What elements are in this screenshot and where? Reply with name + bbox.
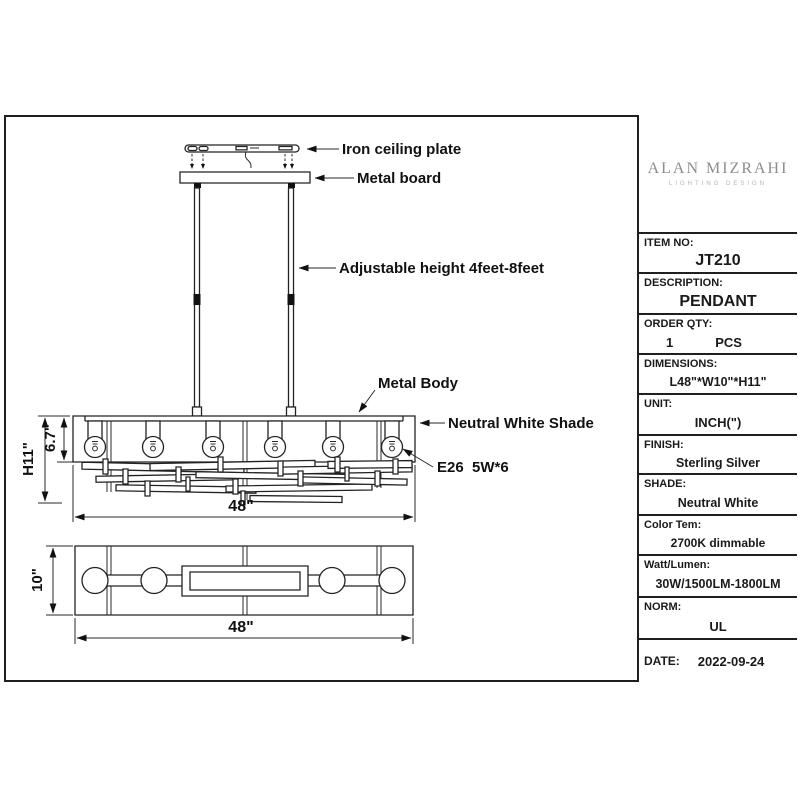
row-color-temp-value: 2700K dimmable <box>644 532 792 554</box>
label-adjustable-height: Adjustable height 4feet-8feet <box>339 260 544 277</box>
row-date-label: DATE: <box>644 654 680 668</box>
row-date-value: 2022-09-24 <box>698 654 765 669</box>
bulb <box>265 421 286 458</box>
row-watt-lumen-label: Watt/Lumen: <box>644 559 792 572</box>
row-order-qty-value: 1 PCS <box>644 331 792 353</box>
iron-ceiling-plate-drawing <box>185 145 299 169</box>
title-block-panel: ALAN MIZRAHI LIGHTING DESIGN ITEM NO: JT… <box>637 115 797 682</box>
label-metal-body: Metal Body <box>378 375 459 392</box>
row-watt-lumen-value: 30W/1500LM-1800LM <box>644 572 792 596</box>
row-finish: FINISH: Sterling Silver <box>639 434 797 473</box>
label-lamp-spec: E26 5W*6 <box>437 459 509 476</box>
dim-depth: 10" <box>29 568 46 592</box>
metal-board-drawing <box>180 172 310 188</box>
row-item-no-label: ITEM NO: <box>644 237 792 250</box>
row-color-temp-label: Color Tem: <box>644 519 792 532</box>
row-item-no: ITEM NO: JT210 <box>639 232 797 272</box>
row-norm: NORM: UL <box>639 596 797 638</box>
spec-sheet-page: { "drawing": { "labels": { "iron_ceiling… <box>0 0 800 800</box>
row-finish-label: FINISH: <box>644 439 792 452</box>
row-norm-label: NORM: <box>644 601 792 614</box>
row-order-qty-label: ORDER QTY: <box>644 318 792 331</box>
order-qty-unit: PCS <box>715 335 742 350</box>
row-dimensions-label: DIMENSIONS: <box>644 358 792 371</box>
dim-width-front: 48" <box>228 498 253 515</box>
bulb <box>323 421 344 458</box>
label-iron-ceiling-plate: Iron ceiling plate <box>342 141 461 158</box>
row-color-temp: Color Tem: 2700K dimmable <box>639 514 797 554</box>
bulb <box>203 421 224 458</box>
label-metal-board: Metal board <box>357 170 441 187</box>
row-date: DATE: 2022-09-24 <box>639 638 797 682</box>
row-dimensions: DIMENSIONS: L48"*W10"*H11" <box>639 353 797 393</box>
order-qty-number: 1 <box>666 335 673 350</box>
bulb <box>143 421 164 458</box>
brand-name: ALAN MIZRAHI <box>648 160 789 178</box>
dim-width-bottom: 48" <box>228 619 253 636</box>
brand-tagline: LIGHTING DESIGN <box>669 181 767 187</box>
bulb <box>382 421 403 458</box>
bulb <box>85 421 106 458</box>
row-shade-label: SHADE: <box>644 478 792 491</box>
shade-bottom-view <box>75 546 413 615</box>
dim-shade-height: 6.7" <box>42 424 59 452</box>
row-norm-value: UL <box>644 614 792 638</box>
row-finish-value: Sterling Silver <box>644 452 792 473</box>
row-shade-value: Neutral White <box>644 491 792 514</box>
row-description: DESCRIPTION: PENDANT <box>639 272 797 313</box>
row-dimensions-value: L48"*W10"*H11" <box>644 371 792 393</box>
row-item-no-value: JT210 <box>644 250 792 272</box>
dim-height-overall: H11" <box>20 442 37 476</box>
row-order-qty: ORDER QTY: 1 PCS <box>639 313 797 353</box>
row-description-label: DESCRIPTION: <box>644 277 792 290</box>
label-neutral-white-shade: Neutral White Shade <box>448 415 594 432</box>
row-shade: SHADE: Neutral White <box>639 473 797 514</box>
row-unit-label: UNIT: <box>644 398 792 411</box>
suspension-rods <box>193 188 296 416</box>
row-description-value: PENDANT <box>644 290 792 313</box>
row-watt-lumen: Watt/Lumen: 30W/1500LM-1800LM <box>639 554 797 596</box>
row-unit: UNIT: INCH(") <box>639 393 797 434</box>
row-unit-value: INCH(") <box>644 411 792 434</box>
brand-logo: ALAN MIZRAHI LIGHTING DESIGN <box>639 115 797 232</box>
